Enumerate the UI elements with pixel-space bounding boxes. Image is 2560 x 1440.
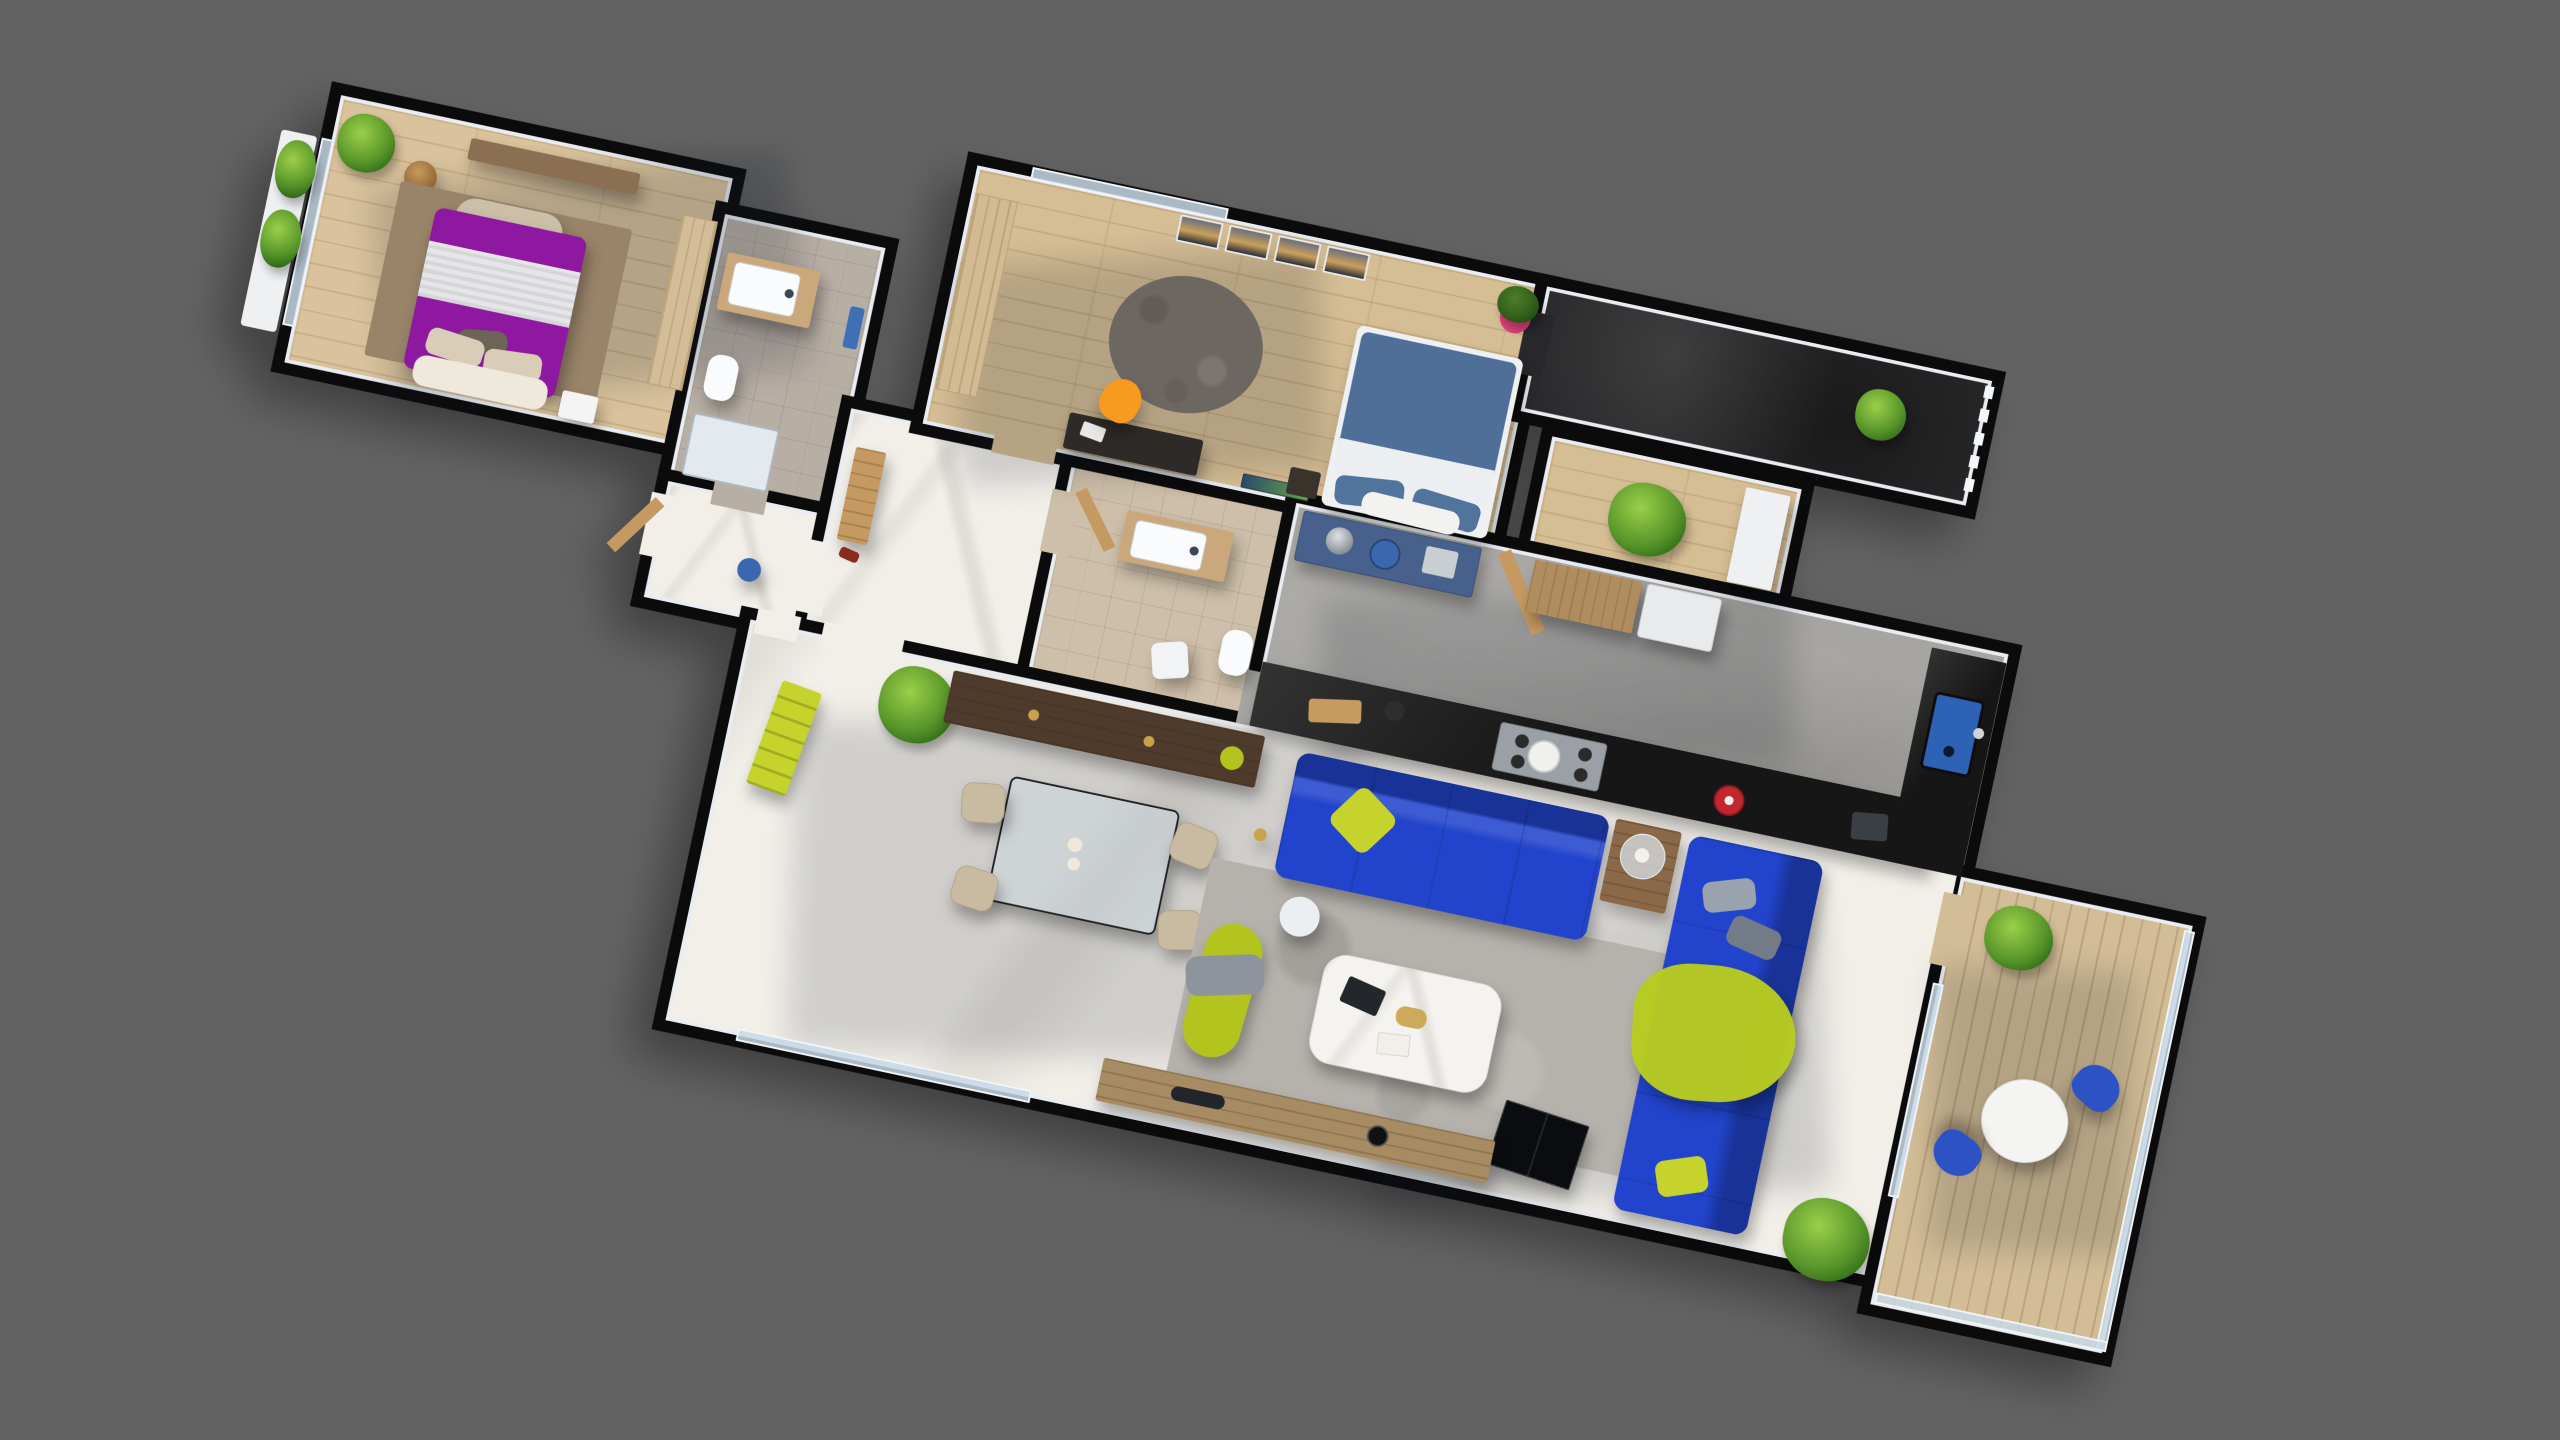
sweater-on-pouf (1185, 954, 1265, 997)
render-background (0, 0, 2560, 1440)
dark-appliance (1850, 812, 1888, 842)
book (1376, 1032, 1411, 1057)
cutting-board (1308, 698, 1362, 723)
floorplan-3d-render (161, 33, 2312, 1357)
lime-pillow-bottom (1654, 1155, 1710, 1198)
gray-pillow-1 (1701, 877, 1757, 913)
bathroom2-stool (1151, 641, 1189, 679)
page: { "meta": { "description": "3D isometric… (0, 0, 2560, 1440)
dining-chair-1 (960, 781, 1006, 824)
